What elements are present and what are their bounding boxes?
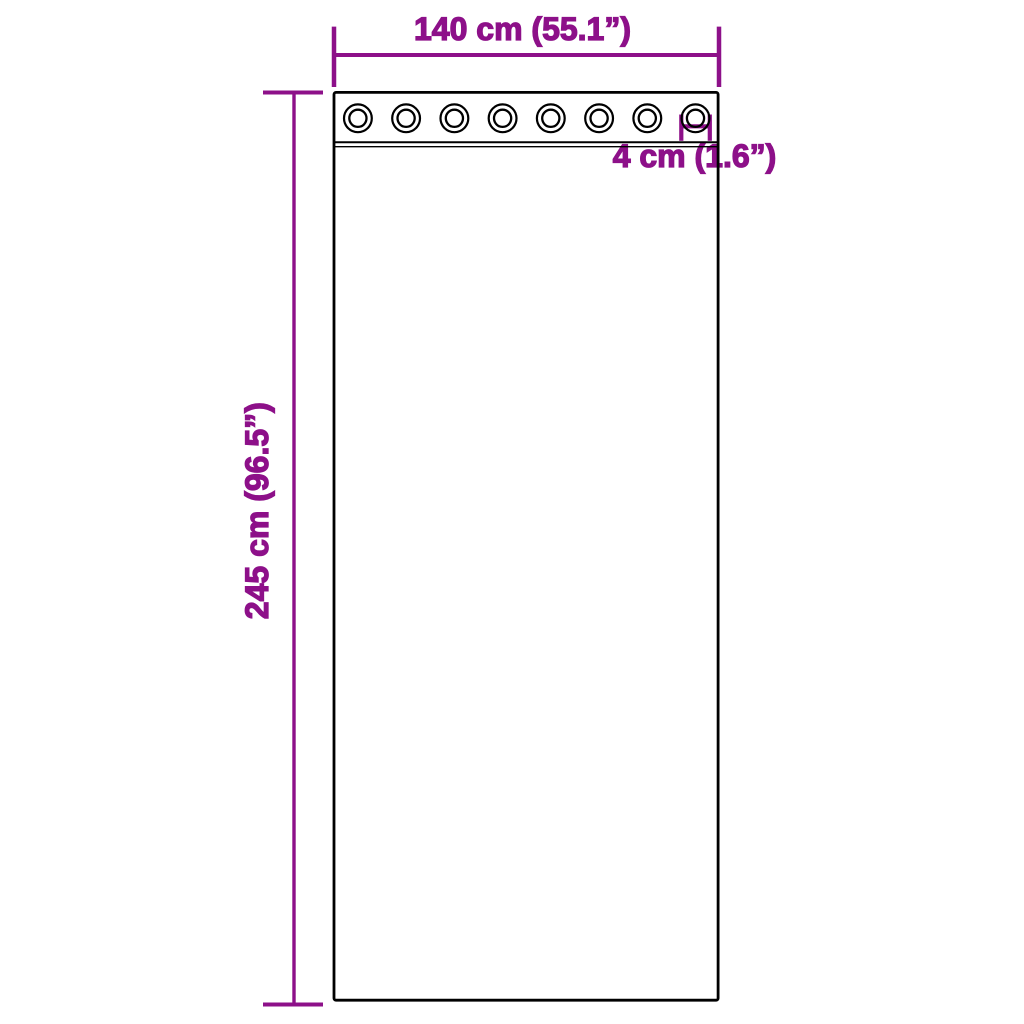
svg-text:245 cm (96.5”): 245 cm (96.5”) [239, 402, 275, 619]
svg-text:140 cm (55.1”): 140 cm (55.1”) [414, 11, 631, 47]
